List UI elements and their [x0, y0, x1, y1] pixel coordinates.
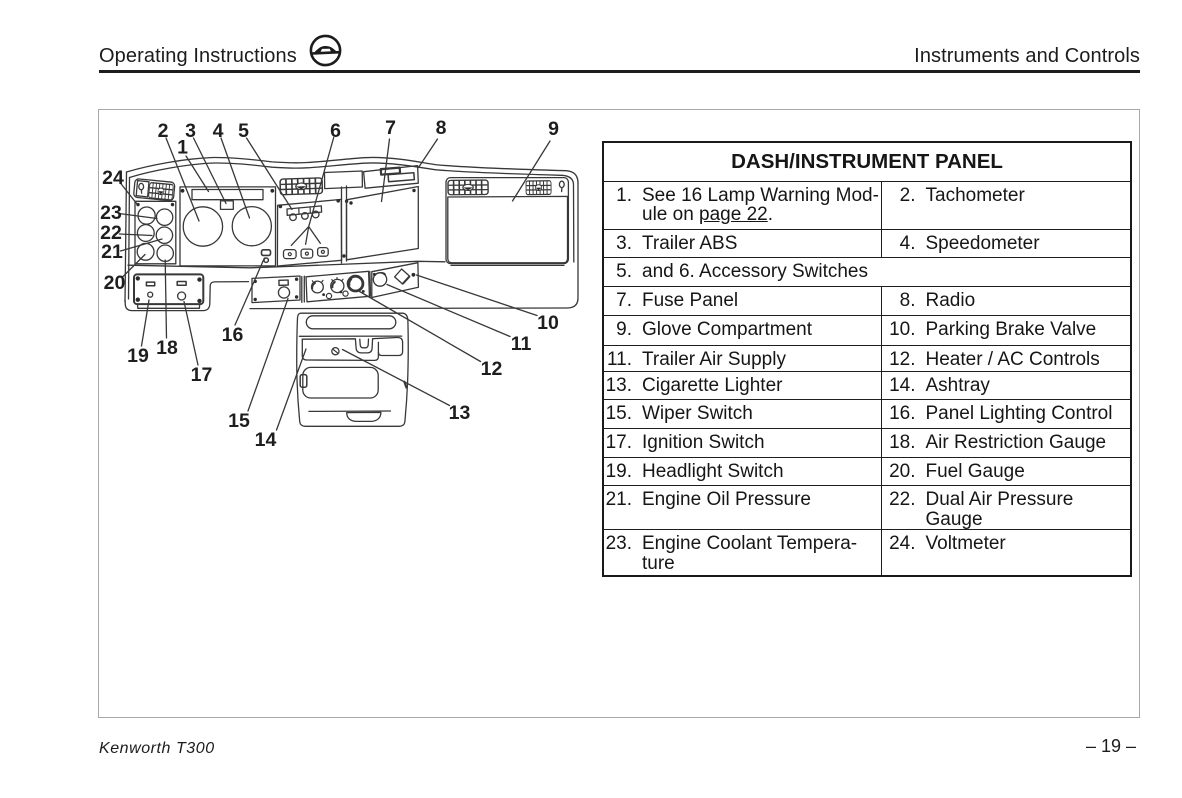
svg-text:10: 10 [537, 312, 559, 334]
svg-text:13: 13 [449, 402, 471, 424]
svg-text:20: 20 [104, 272, 126, 294]
svg-text:11: 11 [511, 333, 532, 355]
svg-text:7: 7 [385, 117, 396, 139]
svg-text:14: 14 [255, 429, 277, 451]
svg-text:18: 18 [156, 337, 178, 359]
svg-text:24: 24 [102, 167, 124, 189]
svg-text:16: 16 [222, 324, 244, 346]
svg-text:9: 9 [548, 118, 559, 140]
svg-text:17: 17 [191, 364, 213, 386]
svg-text:15: 15 [228, 410, 250, 432]
svg-text:2: 2 [158, 120, 169, 142]
svg-text:12: 12 [481, 358, 503, 380]
svg-text:19: 19 [127, 345, 149, 367]
svg-text:3: 3 [185, 120, 196, 142]
svg-text:5: 5 [238, 120, 249, 142]
svg-text:22: 22 [100, 222, 122, 244]
svg-text:4: 4 [213, 120, 224, 142]
svg-text:23: 23 [100, 202, 122, 224]
svg-text:21: 21 [101, 241, 123, 263]
svg-text:8: 8 [436, 117, 447, 139]
svg-text:6: 6 [330, 120, 341, 142]
